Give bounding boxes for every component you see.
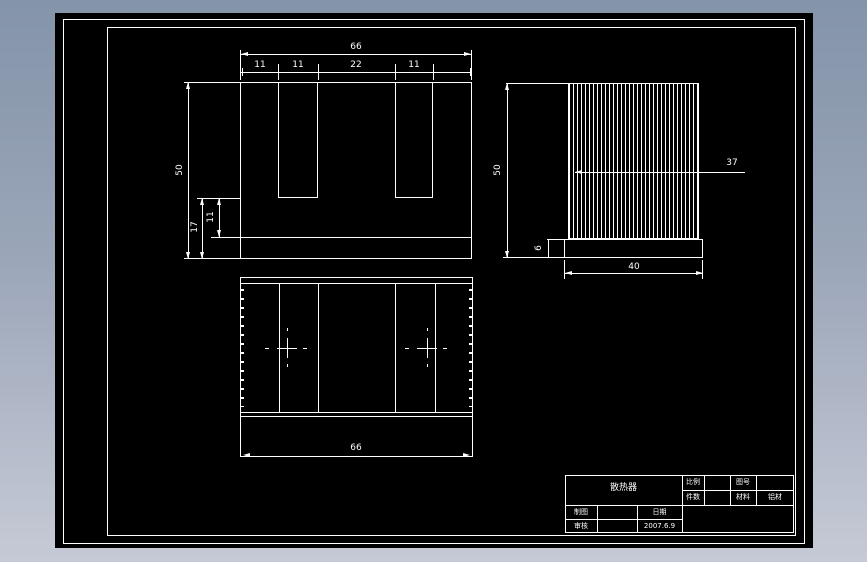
dim-top-total-width: 66 <box>348 443 364 453</box>
dim-arrow <box>505 83 509 90</box>
dim-arrow <box>241 52 248 56</box>
dim-front-seg3: 22 <box>348 60 364 70</box>
dim-arrow <box>200 252 204 259</box>
centerline-dash <box>287 364 288 367</box>
dim-front-step11: 11 <box>206 209 216 225</box>
dim-front-seg2: 11 <box>290 60 306 70</box>
dim-arrow <box>505 251 509 258</box>
side-view-fins <box>568 83 699 239</box>
date-value: 2007.6.9 <box>637 522 682 531</box>
dim-extension-line <box>564 260 565 279</box>
drafter-label: 制图 <box>565 508 597 517</box>
date-label: 日期 <box>637 508 682 517</box>
front-view-slot-right <box>395 82 433 198</box>
center-mark <box>427 338 428 358</box>
dim-extension-line <box>184 82 240 83</box>
top-view-division-line <box>395 283 396 412</box>
dim-arrow <box>575 170 582 174</box>
dim-extension-line <box>702 260 703 279</box>
dim-arrow <box>463 453 470 457</box>
dim-tick <box>318 68 319 76</box>
title-block-line <box>565 519 682 520</box>
dim-arrow <box>696 271 703 275</box>
centerline-dash <box>303 348 307 349</box>
dim-extension-line <box>503 257 564 258</box>
top-view-upper-edge-line <box>240 283 473 284</box>
drawing-no-label: 图号 <box>730 478 756 487</box>
front-view-base-line <box>240 237 472 238</box>
dim-tick <box>395 68 396 76</box>
dim-tick <box>242 68 243 76</box>
title-block-line <box>682 490 794 491</box>
top-view-lower-edge-line <box>240 412 473 413</box>
front-view-outline <box>240 82 472 259</box>
top-view-fin-ticks-left <box>241 289 244 407</box>
dim-tick <box>470 68 471 76</box>
dim-extension-line <box>184 258 240 259</box>
front-view-slot-left <box>278 82 318 198</box>
center-mark <box>287 338 288 358</box>
dim-arrow <box>217 230 221 237</box>
dim-tick <box>278 68 279 76</box>
centerline-dash <box>265 348 269 349</box>
dim-line-front-step17 <box>202 198 203 259</box>
dim-arrow <box>186 252 190 259</box>
dim-line-front-height <box>188 82 189 259</box>
dim-line-front-total <box>240 54 472 55</box>
dim-arrow <box>243 453 250 457</box>
part-name: 散热器 <box>565 484 682 493</box>
top-view-outline <box>240 277 473 457</box>
dim-front-seg1: 11 <box>252 60 268 70</box>
centerline-dash <box>405 348 409 349</box>
scale-label: 比例 <box>682 478 704 487</box>
dim-side-height: 50 <box>493 162 503 178</box>
leader-line-fin-span <box>575 172 745 173</box>
dim-line-side-base-width <box>564 273 703 274</box>
dim-extension-line <box>547 239 564 240</box>
dim-line-side-height <box>507 83 508 258</box>
dim-extension-line <box>506 83 568 84</box>
side-view-base <box>564 239 703 258</box>
material-label: 材料 <box>730 493 756 502</box>
dim-arrow <box>565 271 572 275</box>
quantity-label: 件数 <box>682 493 704 502</box>
dim-line-side-base-height <box>548 239 549 258</box>
top-view-fin-ticks-right <box>469 289 472 407</box>
dim-front-total-width: 66 <box>348 42 364 52</box>
material-value: 铝材 <box>756 493 794 502</box>
dim-arrow <box>217 198 221 205</box>
dim-arrow <box>200 198 204 205</box>
dim-side-base-width: 40 <box>626 262 642 272</box>
top-view-base-edge-line <box>240 416 473 417</box>
dim-tick <box>433 68 434 76</box>
centerline-dash <box>443 348 447 349</box>
centerline-dash <box>427 364 428 367</box>
dim-line-front-segments <box>240 72 472 73</box>
checker-label: 审核 <box>565 522 597 531</box>
dim-side-fin-span: 37 <box>724 158 740 168</box>
centerline-dash <box>287 328 288 331</box>
dim-front-height: 50 <box>175 162 185 178</box>
dim-side-base-height: 6 <box>534 240 544 256</box>
dim-extension-line <box>211 237 240 238</box>
title-block-line <box>565 505 794 506</box>
dim-front-seg4: 11 <box>406 60 422 70</box>
dim-front-step17: 17 <box>190 219 200 235</box>
dim-arrow <box>464 52 471 56</box>
centerline-dash <box>427 328 428 331</box>
dim-arrow <box>186 82 190 89</box>
top-view-division-line <box>318 283 319 412</box>
